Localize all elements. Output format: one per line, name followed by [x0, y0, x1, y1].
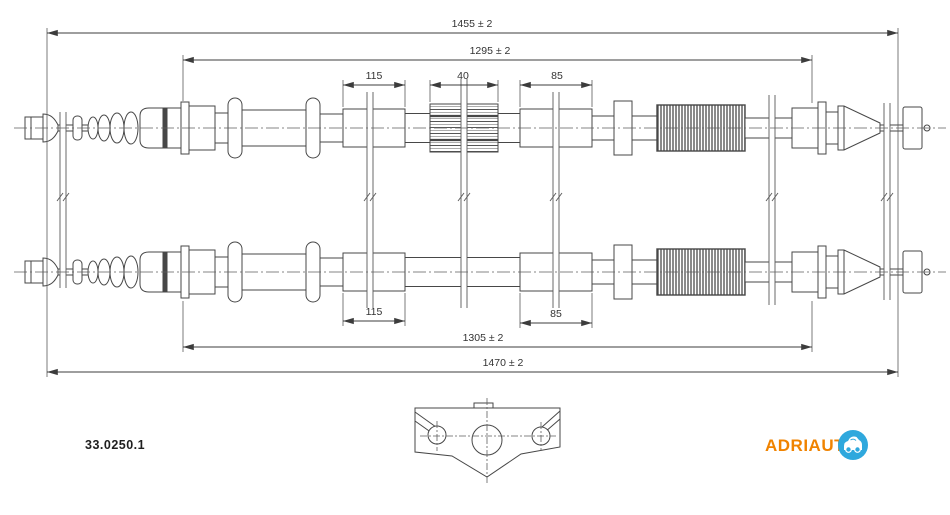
brand-logo: ADRIAUT	[765, 430, 868, 460]
dim-label-bottom-85: 85	[550, 308, 562, 320]
dim-label-1455: 1455 ± 2	[452, 18, 493, 30]
dim-label-1305: 1305 ± 2	[463, 332, 504, 344]
dim-label-1295: 1295 ± 2	[470, 45, 511, 57]
technical-drawing-canvas: 1455 ± 2 1295 ± 2 115 40 85 115 85	[0, 0, 950, 515]
dim-label-bottom-115: 115	[366, 306, 383, 318]
brand-logo-badge	[838, 430, 868, 460]
dimension-top-inner: 1295 ± 2	[183, 45, 812, 103]
dimension-bottom-inner: 1305 ± 2	[183, 301, 812, 352]
part-number: 33.0250.1	[85, 438, 145, 452]
technical-drawing-page: 1455 ± 2 1295 ± 2 115 40 85 115 85	[0, 0, 950, 515]
dimension-top-115: 115	[343, 70, 405, 107]
dim-label-top-85: 85	[551, 70, 563, 82]
dimension-bottom-overall: 1470 ± 2	[47, 357, 898, 372]
dim-label-top-115: 115	[366, 70, 383, 82]
dim-label-1470: 1470 ± 2	[483, 357, 524, 369]
dim-label-top-40: 40	[457, 70, 469, 82]
dimension-bottom-115: 115	[343, 293, 405, 326]
bracket-detail-drawing	[415, 398, 560, 484]
brand-logo-text: ADRIAUT	[765, 436, 845, 455]
